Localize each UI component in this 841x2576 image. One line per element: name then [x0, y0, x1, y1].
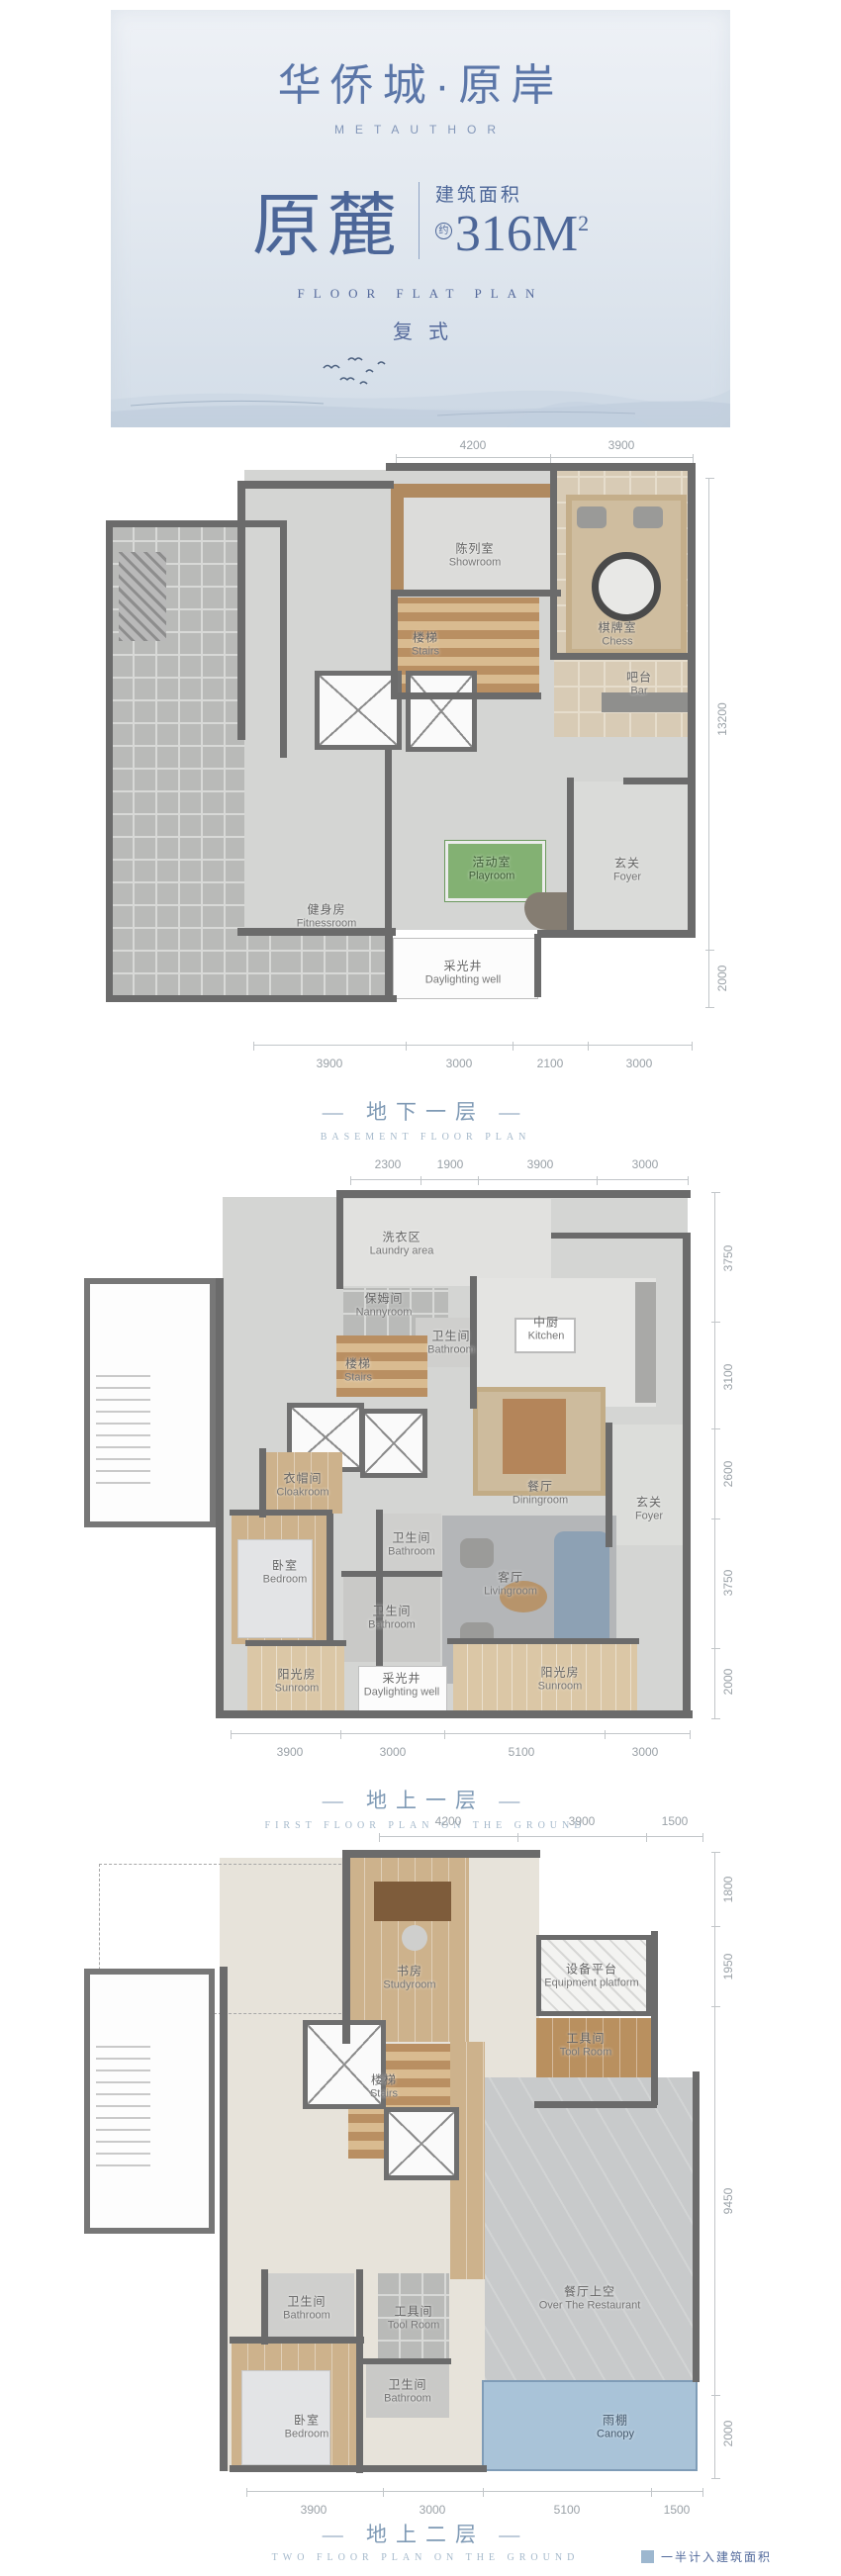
- floorplan-poster: 华侨城·原岸 METAUTHOR 原麓 建筑面积 约 316M 2 FLOOR …: [0, 0, 841, 2576]
- dimension-label: 3900: [569, 1814, 596, 1828]
- stair-treads: [96, 2038, 150, 2166]
- dimension-label: 2000: [721, 2421, 735, 2447]
- wall: [356, 2269, 363, 2473]
- wall: [342, 1850, 350, 2044]
- wall: [534, 2101, 657, 2108]
- dimension-line: [246, 2491, 702, 2492]
- canopy-area: [482, 2380, 698, 2471]
- section-subtitle-second-floor: TWO FLOOR PLAN ON THE GROUND: [272, 2552, 580, 2563]
- elevator-icon: [384, 2107, 459, 2180]
- dimension-label: 3000: [420, 2503, 446, 2517]
- room-label-bathroom: 卫生间Bathroom: [384, 2376, 431, 2405]
- wall: [651, 1931, 658, 2105]
- room-label-studyroom: 书房Studyroom: [383, 1963, 435, 1991]
- dimension-label: 9450: [721, 2188, 735, 2215]
- double-height-void: [485, 2077, 695, 2380]
- legend-text: 一半计入建筑面积: [661, 2548, 772, 2565]
- room-label-equipment-platform: 设备平台Equipment platform: [544, 1961, 638, 1989]
- wall: [362, 2358, 451, 2364]
- dimension-label: 5100: [554, 2503, 581, 2517]
- room-label-tool-room: 工具间Tool Room: [388, 2303, 440, 2332]
- room-label-stairs: 楼梯Stairs: [370, 2071, 398, 2100]
- second-floor-plan: 书房Studyroom 设备平台Equipment platform 工具间To…: [0, 0, 841, 2576]
- room-label-over-the-restaurant: 餐厅上空Over The Restaurant: [539, 2283, 641, 2312]
- dimension-line: [379, 1836, 702, 1837]
- room-label-tool-room: 工具间Tool Room: [560, 2030, 612, 2059]
- wall: [342, 1850, 540, 1858]
- dimension-label: 3900: [301, 2503, 327, 2517]
- dimension-label: 4200: [435, 1814, 462, 1828]
- legend-note: 一半计入建筑面积: [641, 2548, 772, 2565]
- dimension-label: 1800: [721, 1877, 735, 1903]
- desk: [374, 1882, 451, 1921]
- wall: [230, 2337, 364, 2344]
- wall: [261, 2269, 268, 2345]
- dimension-label: 1500: [662, 1814, 689, 1828]
- dimension-label: 1500: [664, 2503, 691, 2517]
- room-label-bathroom: 卫生间Bathroom: [283, 2293, 330, 2322]
- chair: [402, 1925, 427, 1951]
- legend-swatch-icon: [641, 2550, 654, 2563]
- section-title-second-floor: — 地上二层 —: [323, 2519, 529, 2548]
- room-label-canopy: 雨棚Canopy: [597, 2412, 634, 2440]
- dimension-label: 1950: [721, 1954, 735, 1980]
- wall: [693, 2071, 700, 2382]
- wall: [220, 1967, 228, 2471]
- dimension-line: [714, 1852, 715, 2478]
- room-label-bedroom: 卧室Bedroom: [285, 2412, 329, 2440]
